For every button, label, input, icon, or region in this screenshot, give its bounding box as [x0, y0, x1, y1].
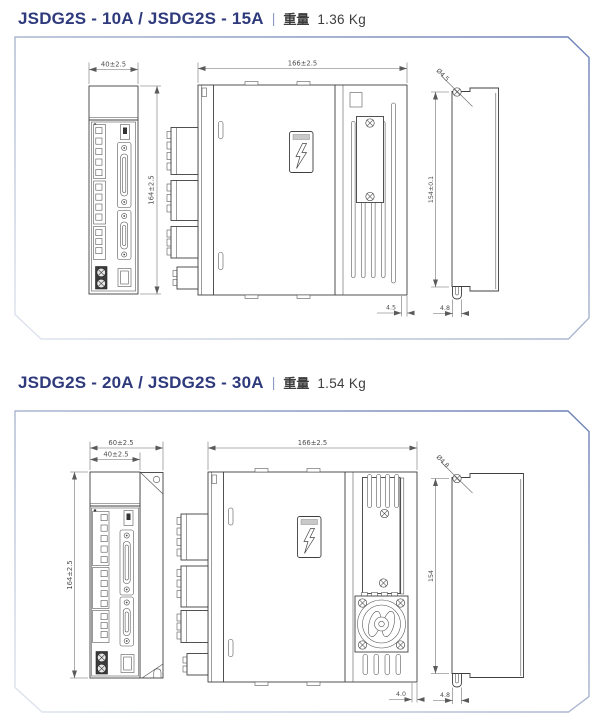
brake-resistor-plate [357, 117, 384, 203]
dim-heatsink-offset: 4.5 [386, 305, 396, 312]
mount-tab [453, 674, 462, 688]
panel-10a-15a: 40±2.5 164±2.5 [15, 37, 589, 339]
power-connector [96, 652, 108, 675]
dim-depth: 166±2.5 [288, 60, 317, 68]
side-view: 166±2.5 [167, 60, 414, 317]
power-connector [96, 267, 108, 290]
screw-icon [366, 192, 374, 200]
dim-mount-hole-dia: Ø4.8 [435, 453, 451, 469]
connector-cn2 [120, 597, 134, 646]
mount-tab [453, 287, 462, 300]
heatsink-extension [140, 473, 163, 679]
mount-screw-icon [453, 474, 461, 482]
warning-lightning-icon [298, 517, 322, 558]
dim-front-height: 164±2.5 [66, 560, 74, 589]
screw-icon [380, 509, 388, 517]
dim-overall-width: 60±2.5 [108, 439, 133, 447]
rear-mount-view: Ø4.5 154±0.1 4.8 [428, 67, 499, 317]
dim-mount-pitch: 154 [428, 570, 435, 582]
side-connector-bumps [167, 128, 198, 290]
fan-icon [355, 596, 408, 652]
charge-led [121, 125, 130, 140]
dsub-connector-cn1 [120, 530, 134, 595]
warning-lightning-icon [290, 132, 314, 173]
dim-mount-pitch: 154±0.1 [428, 176, 435, 203]
screw-icon [366, 119, 374, 127]
dsub-connector-cn1 [118, 143, 132, 208]
dim-slot-width: 4.8 [440, 692, 450, 699]
dim-mount-hole-dia: Ø4.5 [435, 67, 451, 83]
panel-20a-30a: 60±2.5 40±2.5 164±2.5 [15, 411, 589, 712]
screw-icon [379, 579, 387, 587]
dim-front-height: 164±2.5 [148, 175, 156, 204]
rear-mount-view: Ø4.8 154 4.8 [428, 453, 524, 704]
side-view: 166±2.5 [177, 439, 424, 703]
terminal-blocks [94, 125, 106, 260]
dim-front-width: 40±2.5 [103, 451, 128, 459]
dim-heatsink-offset: 4.0 [396, 691, 406, 698]
bottom-port [121, 655, 134, 673]
drawings-canvas: 40±2.5 164±2.5 [0, 0, 600, 720]
front-view: 40±2.5 164±2.5 [89, 61, 161, 295]
charge-led [124, 511, 133, 526]
datasheet-page: JSDG2S - 10A / JSDG2S - 15A | 重量 1.36 Kg… [0, 0, 600, 720]
dim-front-width: 40±2.5 [101, 61, 126, 69]
side-connector-bumps [177, 514, 208, 675]
bottom-port [118, 269, 131, 287]
terminal-blocks [93, 512, 110, 643]
connector-cn2 [118, 211, 132, 260]
front-view: 60±2.5 40±2.5 164±2.5 [66, 439, 163, 678]
mount-screw-icon [453, 88, 461, 96]
dim-depth: 166±2.5 [298, 439, 327, 447]
dim-slot-width: 4.8 [440, 305, 450, 312]
